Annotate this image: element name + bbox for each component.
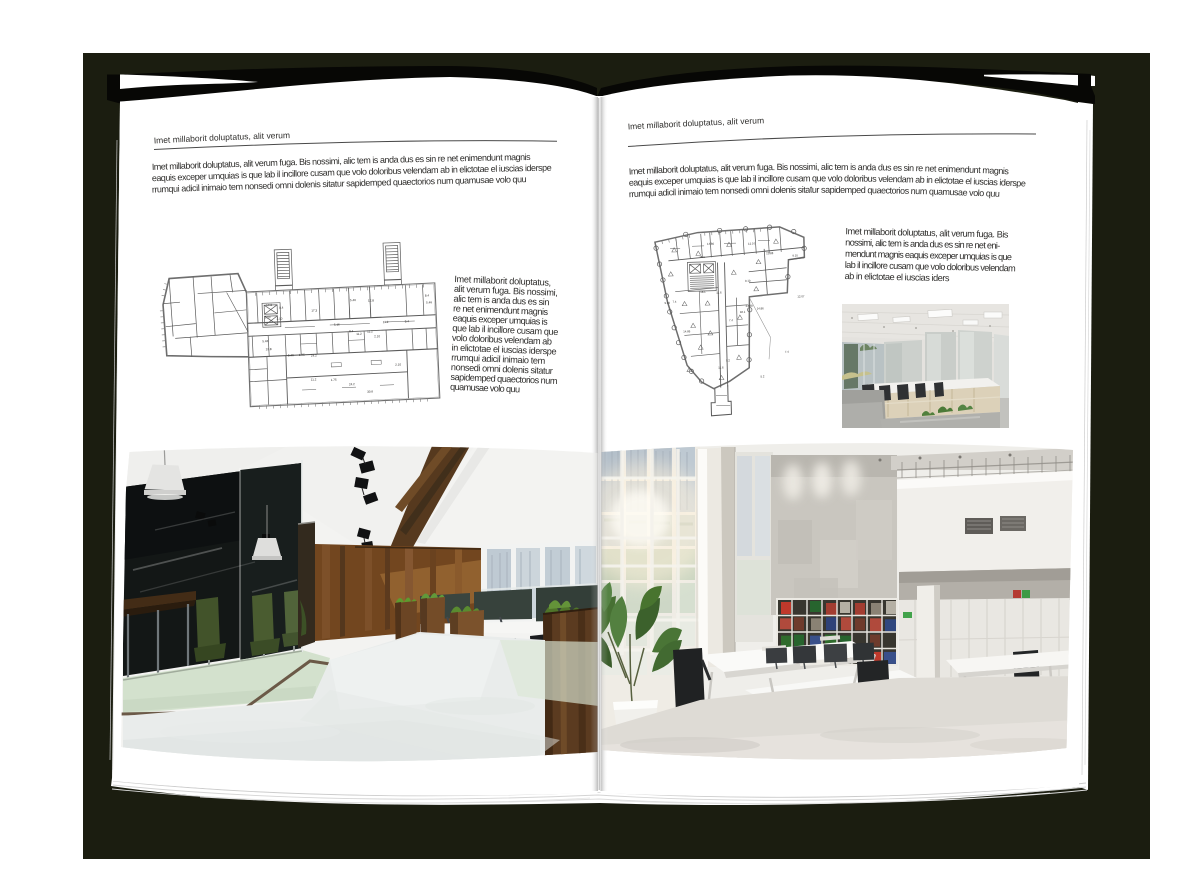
svg-text:5.46: 5.46 xyxy=(350,298,356,302)
svg-text:8.4: 8.4 xyxy=(279,306,284,310)
svg-text:5.46: 5.46 xyxy=(288,353,294,357)
svg-text:30.6: 30.6 xyxy=(367,389,373,393)
svg-text:9.10: 9.10 xyxy=(745,279,751,283)
svg-text:5.46: 5.46 xyxy=(334,323,340,327)
svg-text:23.88: 23.88 xyxy=(766,251,774,255)
svg-text:18.1: 18.1 xyxy=(699,255,705,259)
svg-text:12.07: 12.07 xyxy=(748,242,756,246)
svg-text:14.86: 14.86 xyxy=(757,306,765,310)
svg-text:2.10: 2.10 xyxy=(374,334,380,338)
svg-text:14.86: 14.86 xyxy=(707,242,715,246)
svg-text:5.46: 5.46 xyxy=(426,300,432,304)
svg-text:18.1: 18.1 xyxy=(700,290,706,294)
svg-text:24.2: 24.2 xyxy=(311,353,317,357)
svg-text:9.10: 9.10 xyxy=(664,301,670,305)
svg-text:24.2: 24.2 xyxy=(349,382,355,386)
svg-text:1.75: 1.75 xyxy=(331,378,337,382)
svg-text:12.8: 12.8 xyxy=(368,298,374,302)
svg-text:14.86: 14.86 xyxy=(683,329,691,333)
svg-text:11.2: 11.2 xyxy=(356,332,362,336)
svg-text:2.10: 2.10 xyxy=(264,315,270,319)
svg-text:1.75: 1.75 xyxy=(299,353,305,357)
svg-text:2.10: 2.10 xyxy=(395,362,401,366)
svg-text:12.07: 12.07 xyxy=(797,294,805,298)
svg-text:7.4: 7.4 xyxy=(785,350,789,354)
svg-text:11.6: 11.6 xyxy=(718,365,724,369)
svg-text:11.2: 11.2 xyxy=(383,320,389,324)
svg-text:23.88: 23.88 xyxy=(746,304,754,308)
svg-text:5.46: 5.46 xyxy=(262,339,268,343)
svg-text:11.2: 11.2 xyxy=(311,377,317,381)
svg-text:17.3: 17.3 xyxy=(266,303,272,307)
svg-text:8.4: 8.4 xyxy=(349,329,354,333)
svg-text:7.4: 7.4 xyxy=(672,300,676,304)
svg-text:11.6: 11.6 xyxy=(716,290,722,294)
svg-text:17.3: 17.3 xyxy=(311,308,317,312)
svg-text:5.2: 5.2 xyxy=(760,374,764,378)
svg-text:8.4: 8.4 xyxy=(405,319,410,323)
svg-text:2.10: 2.10 xyxy=(277,317,283,321)
svg-text:11.2: 11.2 xyxy=(367,329,373,333)
svg-text:12.8: 12.8 xyxy=(266,347,272,351)
svg-text:9.10: 9.10 xyxy=(792,253,798,257)
svg-text:5.2: 5.2 xyxy=(726,358,730,362)
svg-text:7.4: 7.4 xyxy=(729,318,733,322)
svg-text:18.1: 18.1 xyxy=(740,310,746,314)
svg-text:8.4: 8.4 xyxy=(425,293,430,297)
